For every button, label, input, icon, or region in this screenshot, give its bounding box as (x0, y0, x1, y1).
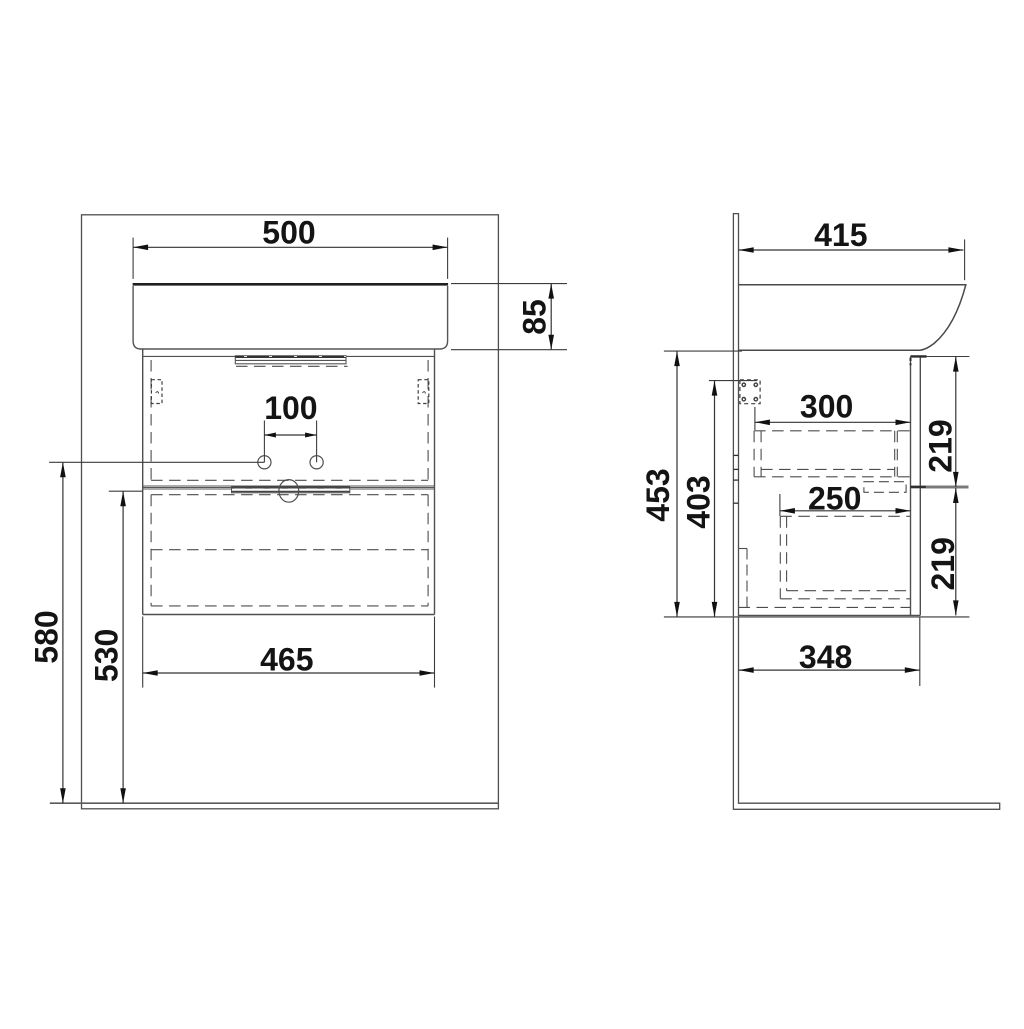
svg-text:219: 219 (925, 537, 961, 590)
svg-text:465: 465 (260, 642, 313, 678)
svg-text:580: 580 (29, 610, 65, 663)
svg-text:348: 348 (799, 639, 852, 675)
svg-text:403: 403 (681, 475, 717, 528)
svg-text:415: 415 (814, 217, 867, 253)
svg-text:530: 530 (89, 629, 125, 682)
svg-text:219: 219 (922, 419, 958, 472)
svg-text:500: 500 (262, 215, 315, 251)
svg-text:300: 300 (800, 389, 853, 425)
svg-text:453: 453 (640, 468, 676, 521)
svg-text:250: 250 (808, 481, 861, 517)
svg-text:100: 100 (264, 390, 317, 426)
svg-text:85: 85 (517, 299, 553, 335)
